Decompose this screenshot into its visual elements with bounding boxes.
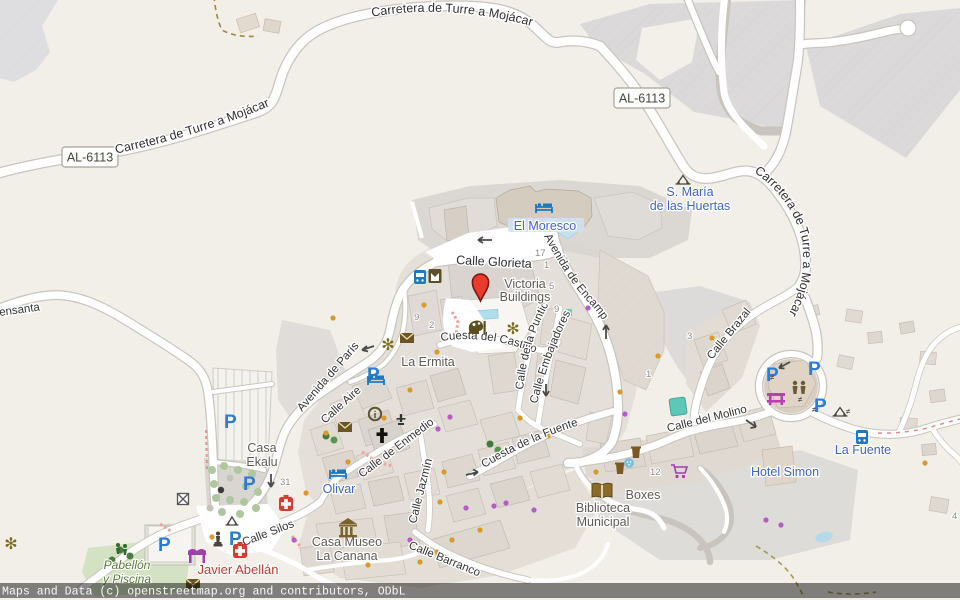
svg-text:i: i [374, 410, 377, 421]
svg-text:✻: ✻ [381, 337, 394, 354]
svg-text:S. María: S. María [666, 185, 713, 199]
svg-text:Casa: Casa [247, 441, 276, 455]
svg-text:✻: ✻ [4, 536, 17, 553]
svg-text:12: 12 [650, 467, 661, 478]
svg-text:P: P [243, 474, 256, 495]
svg-text:Buildings: Buildings [500, 290, 551, 304]
svg-text:Javier Abellán: Javier Abellán [198, 562, 279, 577]
svg-text:La Ermita: La Ermita [401, 355, 455, 369]
svg-text:AL-6113: AL-6113 [67, 151, 113, 165]
svg-text:de las Huertas: de las Huertas [650, 199, 731, 213]
svg-text:Ekalu: Ekalu [246, 455, 277, 469]
svg-text:Hotel Simon: Hotel Simon [751, 465, 819, 479]
svg-text:9: 9 [414, 312, 419, 323]
svg-text:17: 17 [535, 248, 546, 259]
svg-text:Olivar: Olivar [323, 482, 356, 496]
svg-text:El Moresco: El Moresco [514, 219, 577, 233]
svg-text:31: 31 [280, 477, 291, 488]
svg-text:≠: ≠ [798, 395, 803, 404]
svg-text:La Fuente: La Fuente [835, 443, 891, 457]
svg-text:P: P [224, 412, 237, 433]
svg-text:Victoria: Victoria [504, 277, 546, 291]
svg-text:9: 9 [554, 304, 559, 315]
svg-text:P: P [808, 359, 821, 380]
svg-text:Maps and Data (c) openstreetma: Maps and Data (c) openstreetmap.org and … [2, 586, 406, 599]
svg-text:La Canana: La Canana [316, 549, 377, 563]
svg-text:4: 4 [952, 511, 957, 522]
svg-text:≠: ≠ [812, 405, 817, 414]
svg-text:Pabellón: Pabellón [104, 558, 151, 572]
svg-text:≠: ≠ [846, 407, 851, 416]
svg-text:P: P [158, 535, 171, 556]
svg-text:2: 2 [429, 320, 434, 331]
svg-text:AL-6113: AL-6113 [619, 92, 665, 106]
svg-text:5: 5 [549, 281, 554, 292]
svg-text:1: 1 [646, 369, 651, 380]
svg-text:Municipal: Municipal [577, 515, 630, 529]
svg-text:1: 1 [544, 260, 549, 271]
svg-text:≠: ≠ [770, 373, 775, 382]
svg-text:Biblioteca: Biblioteca [576, 501, 630, 515]
svg-text:✻: ✻ [506, 321, 519, 338]
svg-text:3: 3 [687, 331, 692, 342]
svg-text:Boxes: Boxes [626, 488, 661, 502]
